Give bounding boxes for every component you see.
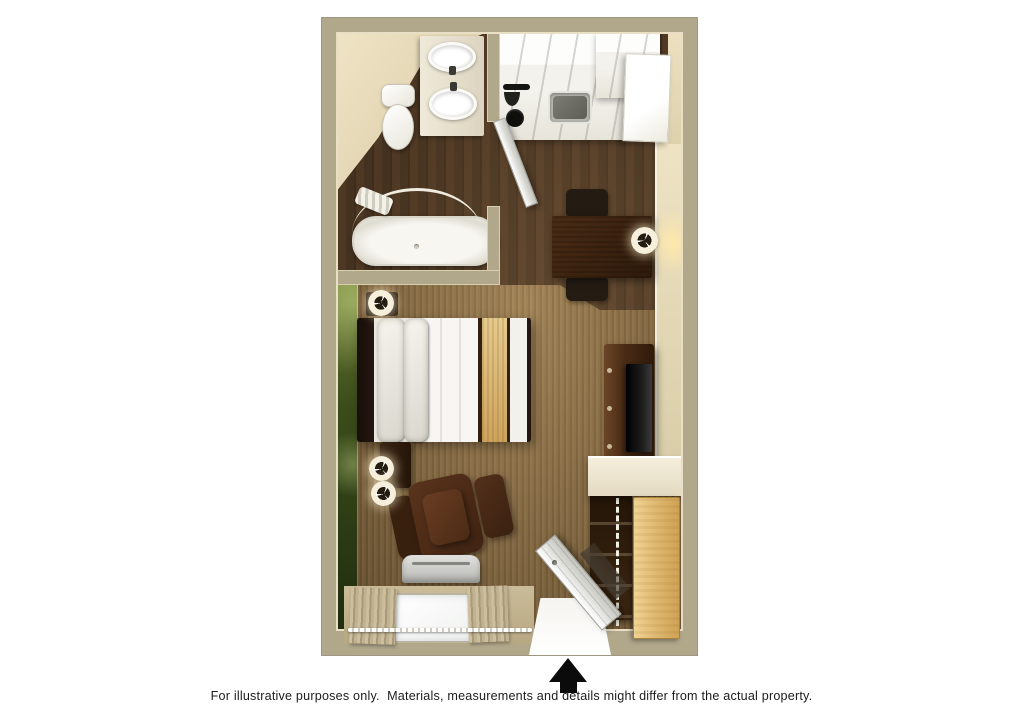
curtain-rod xyxy=(348,628,532,632)
floor-plan-image: For illustrative purposes only. Material… xyxy=(0,0,1023,716)
curtain xyxy=(349,587,397,645)
entrance-arrow-icon xyxy=(549,658,587,682)
disclaimer-caption: For illustrative purposes only. Material… xyxy=(0,689,1023,703)
closet-sliding-door xyxy=(633,497,680,639)
curtain xyxy=(467,585,509,642)
